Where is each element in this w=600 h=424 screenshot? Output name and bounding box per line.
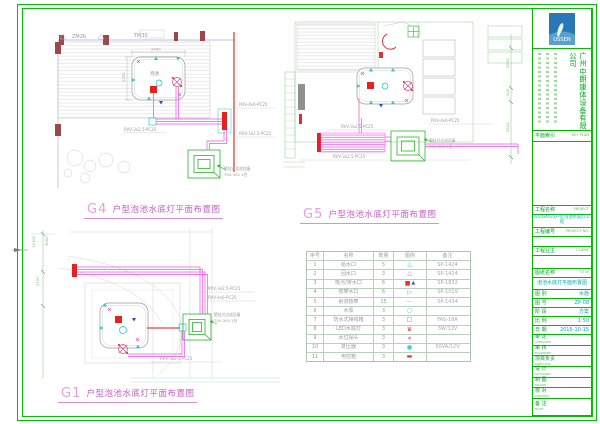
keyplan-box [533, 142, 591, 206]
g5-dim-0: 3500 [505, 58, 510, 68]
sign-en: DRAWN [535, 384, 589, 387]
legend-symbol: △ [394, 270, 427, 278]
g5-equip-label-2: 700-300 1台 [429, 144, 452, 149]
legend-no: 1 [307, 261, 324, 269]
legend-header-row: 序号名称数量图例备注 [307, 252, 470, 260]
legend-remark [427, 307, 468, 315]
sign-en: EXAMINED [535, 352, 589, 355]
client-en: CLIENT [576, 249, 589, 253]
g4-pool-label: 泡池 [150, 70, 159, 77]
legend-row: 4 按摩水口 6 ▷ SP-1019 [307, 288, 470, 297]
legend-qty: 3 [374, 316, 394, 324]
legend-remark: SP-1434 [427, 298, 468, 306]
project-header: 工程名称 PROJECT [533, 206, 591, 215]
g1-cable-pool-label: RVV-3x2.5-PC25 [160, 356, 193, 361]
g5-fitting-arc [382, 34, 396, 49]
sign-label: 校 对 [535, 389, 589, 394]
info-value: ZP-08 [575, 301, 590, 306]
keyplan-en: KEY PLAN [572, 134, 589, 138]
legend-row: 8 LED水底灯 3 ♛ 3W/12V [307, 325, 470, 334]
legend-symbol: △ [394, 261, 427, 269]
legend-name: 按摩水口 [324, 289, 374, 297]
company-info-lines [554, 53, 557, 125]
legend-remark [427, 335, 468, 343]
g4-power-bar-icon [222, 112, 227, 130]
company-name: 广州中朗康体设备有限公司 [568, 52, 588, 130]
legend-qty: 3 [374, 353, 394, 361]
g4-junction-icon [149, 118, 156, 125]
g4-cable-branch-label: RVV-3x2.5-PC25 [239, 131, 272, 136]
legend-header-cell: 名称 [324, 252, 374, 260]
g4-filter-equipment-icon [188, 150, 226, 178]
legend-row: 9 水位探头 3 ∗ [307, 334, 470, 343]
drawing-sheet: ZM26 TM30 泡池 240 [0, 0, 600, 424]
legend-row: 11 电控箱 3 ▬ [307, 352, 470, 361]
g5-power-bar-icon [317, 133, 321, 152]
g1-plan-drawing: 11300 3000 3100 [10, 228, 288, 388]
g4-caption-code: G4 [87, 202, 107, 217]
legend-no: 2 [307, 270, 324, 278]
g1-dim-1: 3000 [44, 236, 49, 246]
info-row: 图 号 ZP-08 [533, 299, 591, 308]
legend-qty: 3 [374, 307, 394, 315]
legend-symbol: ▬ [394, 353, 427, 361]
info-label: 图 别 [535, 292, 547, 297]
sign-en: APPROVED [535, 341, 589, 344]
g5-pool [357, 68, 413, 108]
g1-caption-text: 户型泡池水底灯平面布置图 [86, 389, 194, 399]
g5-control-box-icon [367, 82, 374, 89]
project-no-value [533, 237, 591, 247]
legend-no: 7 [307, 316, 324, 324]
g5-plan-drawing: RVV-3x2.5-PC25 RVV-4x6-PC25 RVV-3x2.5-PC… [283, 14, 533, 204]
g4-cable-feed-label: RVV-4x6-PC25 [239, 102, 268, 107]
g1-caption-code: G1 [61, 386, 81, 401]
g5-caption-code: G5 [303, 207, 323, 222]
legend-remark: SP-1424 [427, 261, 468, 269]
sign-en: CHECKED [535, 395, 589, 398]
legend-header-cell: 图例 [394, 252, 427, 260]
sign-label: 项目负责 [535, 357, 589, 362]
legend-symbol: ♛ [394, 326, 427, 334]
note-en: NOTE [535, 408, 589, 411]
g4-wall-label-1: ZM26 [72, 34, 86, 40]
company-info-lines [538, 53, 541, 125]
legend-name: 回水口 [324, 270, 374, 278]
info-rows: 图 别 水施 图 号 ZP-08 阶 段 方案 比 例 1:50 [533, 290, 591, 335]
info-value: 1:50 [578, 319, 589, 324]
legend-no: 11 [307, 353, 324, 361]
legend-no: 9 [307, 335, 324, 343]
legend-qty: 6 [374, 280, 394, 288]
g4-caption: G4 户型泡池水底灯平面布置图 [84, 197, 223, 219]
legend-qty: 3 [374, 344, 394, 352]
legend-no: 3 [307, 280, 324, 288]
g1-caption: G1 户型泡池水底灯平面布置图 [58, 381, 197, 403]
legend-no: 5 [307, 298, 324, 306]
g4-plan-drawing: ZM26 TM30 泡池 240 [28, 30, 280, 202]
g1-cable-branch-label: RVV-3x2.5-PC25 [208, 286, 241, 291]
g5-cable-feed-label: RVV-4x6-PC25 [431, 118, 460, 123]
g5-detail-boxes [488, 26, 522, 63]
legend-symbol: ▷ [394, 289, 427, 297]
info-label: 图 号 [535, 301, 547, 306]
legend-name: 水位探头 [324, 335, 374, 343]
legend-body: 1 给水口 5 △ SP-1424 2 回水口 3 △ SP-1424 3 吸污 [307, 260, 470, 361]
legend-qty: 15 [374, 298, 394, 306]
legend-row: 3 吸污/排水口 6 ■▲ SP-1832 [307, 279, 470, 288]
info-label: 日 期 [535, 328, 547, 333]
title-label: 图纸名称 [535, 271, 555, 276]
legend-no: 8 [307, 326, 324, 334]
legend-name: 变压器 [324, 344, 374, 352]
legend-name: 水泵 [324, 307, 374, 315]
sign-row: 制 图 DRAWN [533, 378, 591, 389]
g1-cable-feed-label: RVV-4x6-PC25 [208, 295, 237, 300]
legend-symbol: ∗ [394, 335, 427, 343]
legend-qty: 6 [374, 289, 394, 297]
legend-remark: 50VA/12V [427, 344, 468, 352]
legend-remark: SP-1424 [427, 270, 468, 278]
legend-row: 2 回水口 3 △ SP-1424 [307, 269, 470, 278]
legend-no: 4 [307, 289, 324, 297]
drawing-title: 泡池水底灯平面布置图 [533, 278, 591, 290]
g4-planting [64, 150, 130, 183]
g4-wall-label-2: TM30 [133, 33, 148, 39]
g4-control-box-icon [150, 86, 157, 93]
g1-power-bar-icon [72, 264, 77, 277]
info-label: 比 例 [535, 319, 547, 324]
g5-equip-label-1: 壁挂式过滤设备 [429, 138, 456, 143]
keyplan-header: 平面索引 KEY PLAN [533, 131, 591, 142]
info-value: 水施 [579, 292, 589, 297]
keyplan-label: 平面索引 [535, 134, 555, 139]
company-logo: USSEN [533, 9, 591, 49]
legend-row: 7 防水式接线箱 3 □ FAS-18A [307, 315, 470, 324]
g5-cable-branch-label: RVV-3x2.5-PC25 [333, 154, 366, 159]
g5-caption-text: 户型泡池水底灯平面布置图 [328, 210, 436, 220]
project-label: 工程名称 [535, 208, 555, 213]
info-row: 比 例 1:50 [533, 317, 591, 326]
g5-dim-1: 500 [505, 88, 510, 96]
g1-equip-label-1: 壁挂式过滤设备 [214, 312, 241, 317]
note-label: 备 注 [535, 402, 589, 407]
legend-header-cell: 序号 [307, 252, 324, 260]
project-no-header: 工程编号 PROJECT NO. [533, 228, 591, 237]
g1-dimension-chain: 11300 3000 3100 [12, 230, 55, 378]
legend-header-cell: 备注 [427, 252, 468, 260]
legend-qty: 5 [374, 261, 394, 269]
info-value: 2015-10-15 [560, 328, 589, 333]
ussen-logo-icon: USSEN [549, 13, 575, 45]
g4-cable-pool-label: RVV-3x2.5-PC25 [124, 127, 157, 132]
g5-cable-pool-label: RVV-3x2.5-PC25 [341, 124, 374, 129]
g5-caption: G5 户型泡池水底灯平面布置图 [300, 202, 439, 224]
g4-pool: 泡池 [132, 57, 185, 105]
legend-row: 5 射流按摩 15 — SP-1434 [307, 297, 470, 306]
legend-name: 射流按摩 [324, 298, 374, 306]
info-row: 图 别 水施 [533, 290, 591, 299]
project-no-en: PROJECT NO. [566, 230, 589, 234]
company-section: 广州中朗康体设备有限公司 [533, 49, 591, 131]
g5-left-wall [283, 72, 305, 167]
g5-steps [423, 40, 455, 114]
project-en: PROJECT [573, 208, 589, 212]
g5-dim-2: 3500 [505, 122, 510, 132]
g4-equip-label-2: 700-300 1台 [224, 172, 247, 177]
g1-control-box-icon [115, 316, 122, 323]
g1-pool [100, 303, 148, 354]
legend-qty: 3 [374, 270, 394, 278]
sign-en: DESIGNED [535, 373, 589, 376]
g4-caption-text: 户型泡池水底灯平面布置图 [112, 205, 220, 215]
project-no-label: 工程编号 [535, 230, 555, 235]
legend-name: 给水口 [324, 261, 374, 269]
legend-header-cell: 数量 [374, 252, 394, 260]
legend-symbol: □ [394, 316, 427, 324]
sign-row: 校 对 CHECKED [533, 388, 591, 399]
g4-equip-label-1: 壁挂式过滤设备 [224, 166, 251, 171]
g5-dimension-chain: 3500 500 3500 [505, 34, 513, 164]
info-label: 阶 段 [535, 310, 547, 315]
note-row: 备 注 NOTE [533, 399, 591, 415]
g4-dim-top: 2400 [151, 47, 161, 52]
client-label: 工程业主 [535, 249, 555, 254]
info-value: 方案 [579, 310, 589, 315]
legend-no: 6 [307, 307, 324, 315]
legend-symbol: ● [394, 344, 427, 352]
g5-deck [297, 24, 375, 70]
legend-row: 10 变压器 3 ● 50VA/12V [307, 343, 470, 352]
info-row: 阶 段 方案 [533, 308, 591, 317]
legend-name: 电控箱 [324, 353, 374, 361]
g1-dim-2: 3100 [35, 276, 40, 286]
legend-remark: SP-1019 [427, 289, 468, 297]
client-header: 工程业主 CLIENT [533, 247, 591, 256]
g5-cable-tray [321, 133, 385, 152]
title-header: 图纸名称 TITLE [533, 269, 591, 278]
legend-name: 吸污/排水口 [324, 280, 374, 288]
legend-name: 防水式接线箱 [324, 316, 374, 324]
legend-table: 序号名称数量图例备注 1 给水口 5 △ SP-1424 2 回水口 3 △ S… [306, 251, 471, 362]
project-name: G1/G4/G5户型泡池水底灯工程 [533, 215, 591, 228]
sign-row: 审 核 EXAMINED [533, 346, 591, 357]
legend-qty: 3 [374, 326, 394, 334]
legend-remark: SP-1832 [427, 280, 468, 288]
sign-rows: 审 定 APPROVED 审 核 EXAMINED 项目负责 DIRECTOR … [533, 335, 591, 399]
legend-symbol: ■▲ [394, 280, 427, 288]
title-block: USSEN 广州中朗康体设备有限公司 平面索引 KEY PLAN 工程名称 PR… [532, 8, 592, 416]
company-info-lines [546, 53, 549, 125]
legend-remark: FAS-18A [427, 316, 468, 324]
g1-equip-label-2: 700-300 1台 [214, 318, 237, 323]
legend-name: LED水底灯 [324, 326, 374, 334]
legend-no: 10 [307, 344, 324, 352]
client-value [533, 256, 591, 269]
legend-symbol: ○ [394, 307, 427, 315]
legend-row: 6 水泵 3 ○ [307, 306, 470, 315]
legend-symbol: — [394, 298, 427, 306]
g1-dim-0: 11300 [31, 235, 36, 248]
legend-qty: 3 [374, 335, 394, 343]
g4-dim-left: 2200 [121, 72, 126, 82]
logo-text: USSEN [553, 37, 571, 43]
g5-filter-equipment-icon [391, 131, 433, 161]
legend-row: 1 给水口 5 △ SP-1424 [307, 260, 470, 269]
legend-remark [427, 353, 468, 361]
legend-remark: 3W/12V [427, 326, 468, 334]
title-en: TITLE [579, 271, 589, 275]
